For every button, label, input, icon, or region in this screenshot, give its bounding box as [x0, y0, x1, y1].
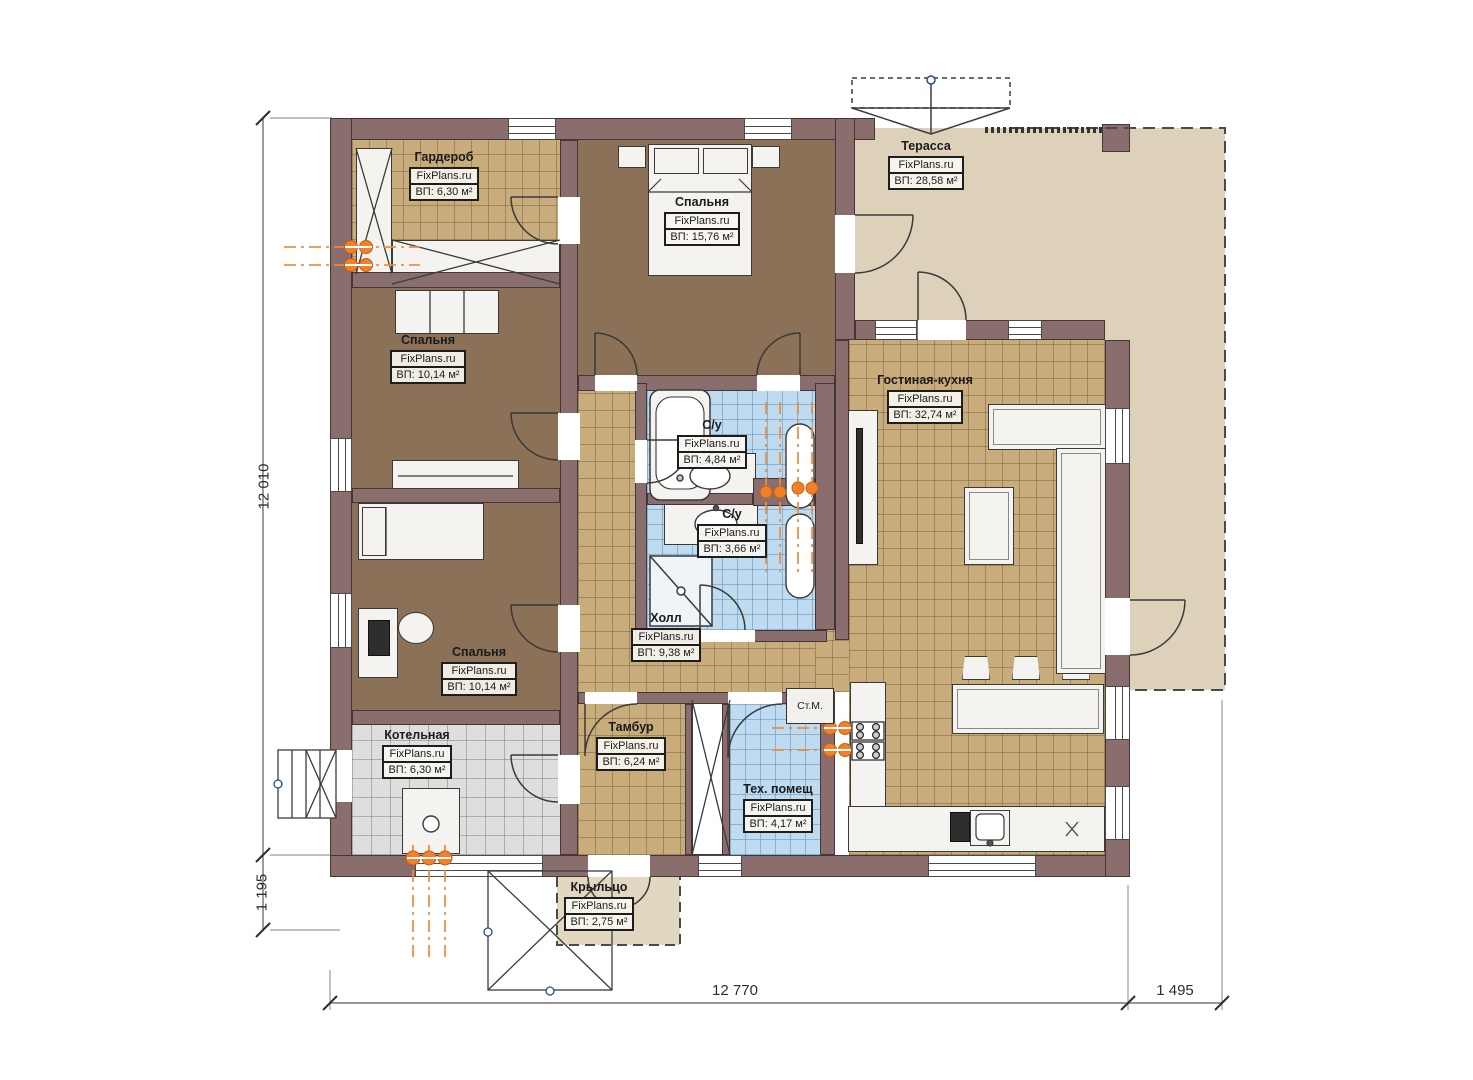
window [698, 855, 742, 877]
area-label: ВП: 3,66 м² [699, 542, 764, 556]
room-name: Терасса [874, 140, 978, 154]
room-info-box: FixPlans.ru ВП: 6,24 м² [596, 737, 665, 771]
door-opening [585, 692, 637, 704]
kitchen-island [952, 684, 1104, 734]
dimension-left-main: 12 010 [256, 456, 273, 518]
room-info-box: FixPlans.ru ВП: 32,74 м² [887, 390, 962, 424]
room-info-box: FixPlans.ru ВП: 15,76 м² [664, 212, 739, 246]
dimension-bottom-right: 1 495 [1135, 982, 1215, 999]
window [928, 855, 1036, 877]
bar-stool [1012, 656, 1040, 680]
sofa [1056, 448, 1106, 674]
door-opening [635, 440, 647, 483]
wardrobe-cabinet [356, 148, 392, 274]
area-label: ВП: 6,30 м² [411, 185, 476, 199]
area-label: ВП: 6,24 м² [598, 755, 663, 769]
room-name: С/у [688, 508, 776, 522]
wardrobe-cabinet [395, 290, 499, 334]
room-label-bedroom-3: Спальня FixPlans.ru ВП: 10,14 м² [430, 646, 528, 696]
room-name: Спальня [652, 196, 752, 210]
wall [647, 493, 753, 505]
area-label: ВП: 2,75 м² [566, 915, 631, 929]
window [415, 855, 543, 877]
room-info-box: FixPlans.ru ВП: 10,14 м² [390, 350, 465, 384]
brand-label: FixPlans.ru [443, 664, 514, 680]
chair [398, 612, 434, 644]
washing-machine-label: Ст.М. [797, 700, 823, 712]
room-label-bathroom-1: С/у FixPlans.ru ВП: 4,84 м² [666, 419, 758, 469]
room-info-box: FixPlans.ru ВП: 4,84 м² [677, 435, 746, 469]
area-label: ВП: 28,58 м² [890, 174, 961, 188]
sofa [988, 404, 1106, 450]
dimension-bottom-main: 12 770 [695, 982, 775, 999]
room-name: Спальня [430, 646, 528, 660]
wall [330, 118, 875, 140]
window [875, 320, 917, 340]
area-label: ВП: 4,84 м² [679, 453, 744, 467]
room-label-tech-room: Тех. помещ FixPlans.ru ВП: 4,17 м² [733, 783, 823, 833]
window [1105, 686, 1130, 740]
room-label-porch: Крыльцо FixPlans.ru ВП: 2,75 м² [553, 881, 645, 931]
brand-label: FixPlans.ru [890, 158, 961, 174]
room-info-box: FixPlans.ru ВП: 6,30 м² [382, 745, 451, 779]
brand-label: FixPlans.ru [666, 214, 737, 230]
pillow [362, 507, 386, 556]
room-info-box: FixPlans.ru ВП: 6,30 м² [409, 167, 478, 201]
nightstand [618, 146, 646, 168]
room-label-hall: Холл FixPlans.ru ВП: 9,38 м² [620, 612, 712, 662]
room-info-box: FixPlans.ru ВП: 9,38 м² [631, 628, 700, 662]
bar-stool [962, 656, 990, 680]
dimension-left-porch: 1 195 [254, 864, 271, 922]
wall [753, 478, 815, 506]
coffee-table [964, 487, 1014, 565]
wall [560, 140, 578, 855]
wall [835, 340, 849, 640]
room-label-bedroom-2: Спальня FixPlans.ru ВП: 10,14 м² [381, 334, 475, 384]
brand-label: FixPlans.ru [889, 392, 960, 408]
nightstand [752, 146, 780, 168]
room-info-box: FixPlans.ru ВП: 4,17 м² [743, 799, 812, 833]
wall [352, 710, 560, 725]
room-name: Спальня [381, 334, 475, 348]
brand-label: FixPlans.ru [633, 630, 698, 646]
room-label-wardrobe: Гардероб FixPlans.ru ВП: 6,30 м² [399, 151, 489, 201]
computer [368, 620, 390, 656]
room-label-terrace: Терасса FixPlans.ru ВП: 28,58 м² [874, 140, 978, 190]
tv-stand [848, 410, 878, 565]
terrace-column [1102, 124, 1130, 152]
room-label-bedroom-master: Спальня FixPlans.ru ВП: 15,76 м² [652, 196, 752, 246]
door-opening [757, 375, 800, 391]
window [744, 118, 792, 140]
room-label-bathroom-2: С/у FixPlans.ru ВП: 3,66 м² [688, 508, 776, 558]
room-name: Гостиная-кухня [858, 374, 992, 388]
door-opening [1105, 598, 1130, 655]
entrance-door-opening [588, 855, 650, 877]
area-label: ВП: 6,30 м² [384, 763, 449, 777]
brand-label: FixPlans.ru [679, 437, 744, 453]
door-opening [558, 605, 580, 652]
wall [635, 383, 647, 630]
kitchen-counter [850, 682, 886, 808]
room-name: Тамбур [584, 721, 678, 735]
door-opening [330, 750, 352, 802]
door-opening [558, 197, 580, 244]
area-label: ВП: 10,14 м² [392, 368, 463, 382]
area-label: ВП: 32,74 м² [889, 408, 960, 422]
window [1008, 320, 1042, 340]
window [1105, 408, 1130, 464]
floor-plan: Гардероб FixPlans.ru ВП: 6,30 м² Спальня… [0, 0, 1473, 1080]
pillow [654, 148, 699, 174]
room-name: Холл [620, 612, 712, 626]
area-label: ВП: 15,76 м² [666, 230, 737, 244]
tv [856, 428, 863, 544]
room-name: С/у [666, 419, 758, 433]
room-info-box: FixPlans.ru ВП: 10,14 м² [441, 662, 516, 696]
room-info-box: FixPlans.ru ВП: 2,75 м² [564, 897, 633, 931]
brand-label: FixPlans.ru [745, 801, 810, 817]
wall [352, 272, 560, 288]
pillow [703, 148, 748, 174]
room-label-vestibule: Тамбур FixPlans.ru ВП: 6,24 м² [584, 721, 678, 771]
brand-label: FixPlans.ru [392, 352, 463, 368]
kitchen-sink [970, 810, 1010, 846]
brand-label: FixPlans.ru [598, 739, 663, 755]
room-name: Гардероб [399, 151, 489, 165]
boiler-unit [402, 788, 460, 854]
washing-machine-box: Ст.М. [786, 688, 834, 724]
room-info-box: FixPlans.ru ВП: 28,58 м² [888, 156, 963, 190]
room-name: Крыльцо [553, 881, 645, 895]
room-label-living-kitchen: Гостиная-кухня FixPlans.ru ВП: 32,74 м² [858, 374, 992, 424]
window [508, 118, 556, 140]
area-label: ВП: 10,14 м² [443, 680, 514, 694]
terrace-floor [1105, 320, 1225, 340]
canopy-roof [852, 76, 1010, 134]
area-label: ВП: 9,38 м² [633, 646, 698, 660]
room-name: Котельная [371, 729, 463, 743]
door-opening [918, 320, 966, 340]
terrace-floor [1130, 340, 1225, 690]
window [330, 593, 352, 648]
window [330, 438, 352, 492]
appliance [950, 812, 970, 842]
area-label: ВП: 4,17 м² [745, 817, 810, 831]
brand-label: FixPlans.ru [699, 526, 764, 542]
wall [722, 704, 730, 855]
door-opening [558, 413, 580, 460]
door-opening [595, 375, 637, 391]
exterior-stair [274, 750, 336, 818]
door-opening [558, 755, 580, 804]
brand-label: FixPlans.ru [411, 169, 476, 185]
room-info-box: FixPlans.ru ВП: 3,66 м² [697, 524, 766, 558]
room-name: Тех. помещ [733, 783, 823, 797]
brand-label: FixPlans.ru [566, 899, 631, 915]
wall [815, 383, 835, 630]
door-opening [728, 692, 782, 704]
room-label-boiler: Котельная FixPlans.ru ВП: 6,30 м² [371, 729, 463, 779]
wall [685, 704, 692, 855]
wall [352, 488, 560, 503]
brand-label: FixPlans.ru [384, 747, 449, 763]
door-opening [835, 215, 855, 273]
window [1105, 786, 1130, 840]
